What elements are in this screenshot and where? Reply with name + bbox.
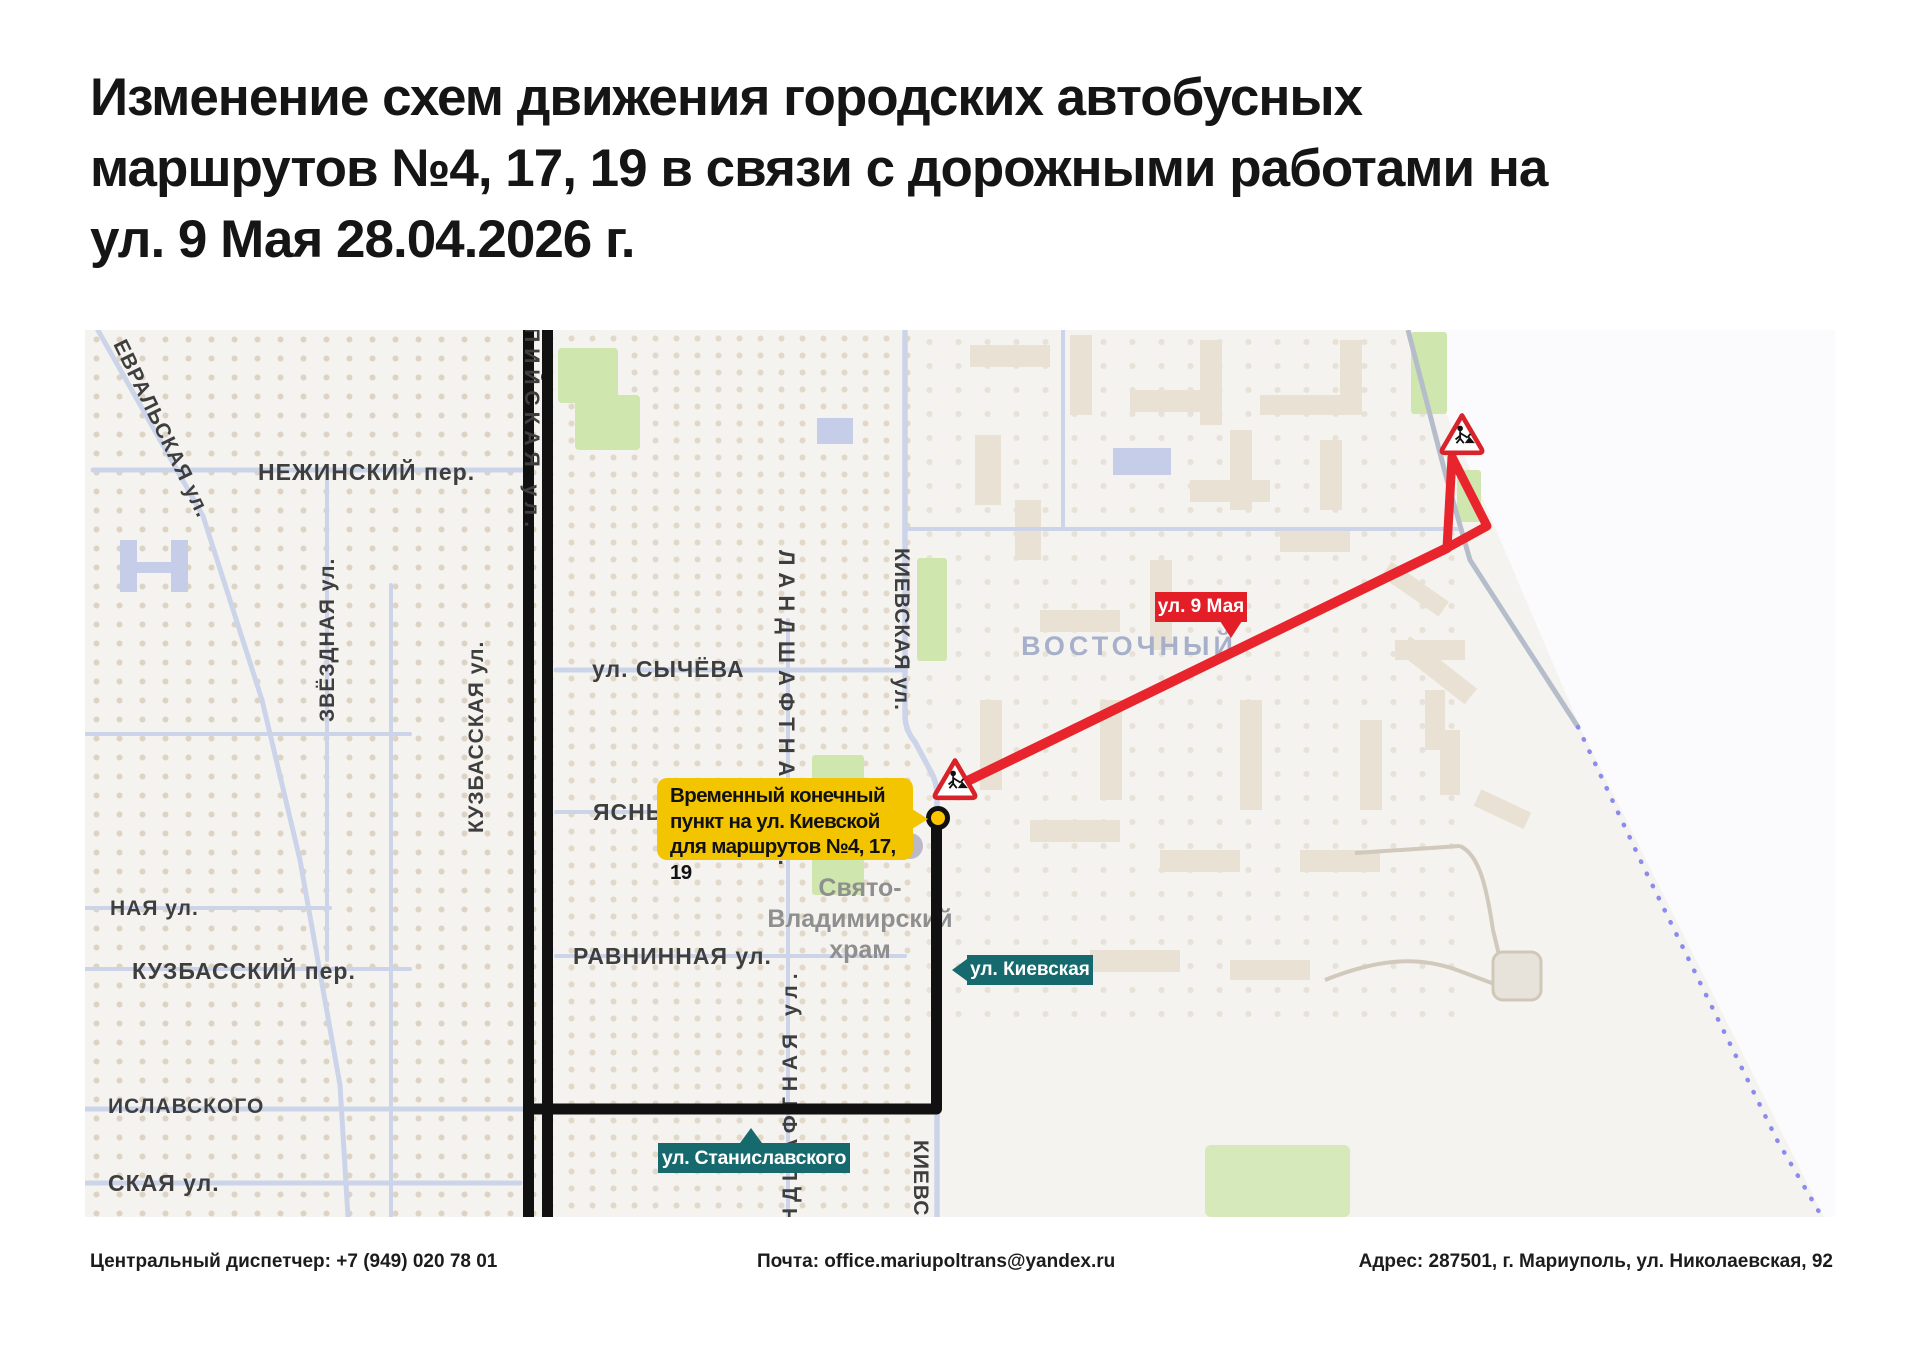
green-areas [558, 332, 1481, 1217]
street-label-skaya: СКАЯ ул. [108, 1170, 220, 1196]
street-label-olimpiyskaya: ОЛИМПИЙСКАЯ ул. [520, 330, 544, 533]
callout-kievskaya-street: ул. Киевская [967, 955, 1093, 985]
street-label-fevralskaya: ЕВРАЛЬСКАЯ ул. [109, 336, 215, 521]
street-label-ravninnaya: РАВНИННАЯ ул. [573, 943, 772, 969]
street-label-sychyova: ул. СЫЧЁВА [592, 656, 745, 682]
road-works-sign-kievskaya [931, 754, 979, 802]
street-label-kievskaya-upper: КИЕВСКАЯ ул. [890, 548, 913, 711]
poster-page: Изменение схем движения городских автобу… [0, 0, 1920, 1357]
church-label-line3: храм [829, 936, 891, 964]
street-label-kievskaya-lower: КИЕВСКАЯ ул. [909, 1140, 932, 1217]
church-label-line2: Владимирский [767, 905, 952, 933]
city-boundary-outside-area [1411, 330, 1835, 1217]
blue-buildings [120, 418, 1171, 592]
street-label-nezhinsky: НЕЖИНСКИЙ пер. [258, 458, 475, 485]
page-title: Изменение схем движения городских автобу… [90, 62, 1650, 275]
street-label-kuzbasskaya: КУЗБАССКАЯ ул. [465, 641, 488, 833]
street-label-kuzbassky-per: КУЗБАССКИЙ пер. [132, 957, 356, 984]
callout-stanislavskogo-street: ул. Станиславского [658, 1143, 850, 1173]
street-label-stanislavskogo-map: ИСЛАВСКОГО [108, 1095, 264, 1118]
footer-email: Почта: office.mariupoltrans@yandex.ru [757, 1251, 1115, 1273]
map-canvas: НЕЖИНСКИЙ пер. ЕВРАЛЬСКАЯ ул. ЗВЁЗДНАЯ у… [85, 330, 1835, 1217]
callout-temporary-terminal: Временный конечный пункт на ул. Киевской… [657, 778, 913, 860]
pond [1493, 952, 1541, 1000]
road-works-sign-north [1438, 409, 1486, 457]
street-label-zvezdnaya: ЗВЁЗДНАЯ ул. [316, 558, 339, 722]
footer-address: Адрес: 287501, г. Мариуполь, ул. Николае… [1359, 1251, 1833, 1273]
district-label-vostochny: ВОСТОЧНЫЙ [1021, 630, 1237, 661]
footer-dispatcher-phone: Центральный диспетчер: +7 (949) 020 78 0… [90, 1251, 497, 1273]
street-label-naya: НАЯ ул. [110, 897, 199, 920]
street-label-landshaftnaya-lower: ЛАНДШАФТНАЯ ул. [779, 967, 802, 1217]
callout-9-maya-street: ул. 9 Мая [1155, 592, 1247, 622]
church-label-line1: Свято- [818, 874, 901, 902]
terminal-stop-marker [926, 806, 950, 830]
